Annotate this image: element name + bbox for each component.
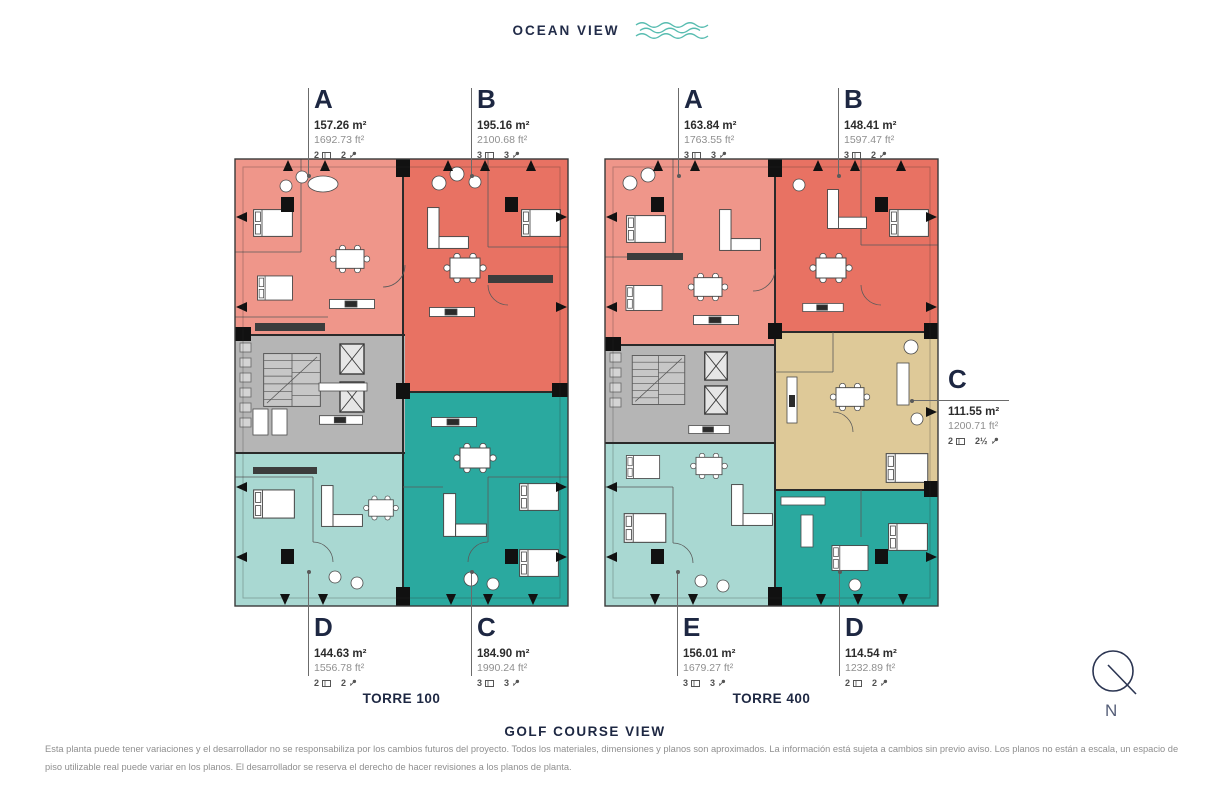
unit-letter: C: [477, 614, 529, 640]
bed-icon: [691, 680, 700, 687]
leader-line: [838, 88, 839, 176]
baths-count: 2: [341, 150, 346, 160]
unit-letter: E: [683, 614, 735, 640]
unit-area-m2: 148.41 m²: [844, 120, 896, 132]
ocean-view-title: OCEAN VIEW: [512, 23, 619, 38]
leader-line: [678, 88, 679, 176]
bed-icon: [322, 152, 331, 159]
unit-label-t100-c: C 184.90 m² 1990.24 ft² 3 3: [477, 614, 529, 688]
beds-count: 3: [683, 678, 688, 688]
bath-icon: [349, 679, 357, 687]
baths-count: 3: [711, 150, 716, 160]
header: OCEAN VIEW: [0, 20, 1226, 40]
unit-letter: D: [845, 614, 897, 640]
unit-area-m2: 163.84 m²: [684, 120, 736, 132]
unit-label-t100-a: A 157.26 m² 1692.73 ft² 2 2: [314, 86, 366, 160]
unit-label-t400-e: E 156.01 m² 1679.27 ft² 3 3: [683, 614, 735, 688]
north-compass-icon: N: [1086, 645, 1158, 723]
unit-area-m2: 184.90 m²: [477, 648, 529, 660]
unit-area-m2: 157.26 m²: [314, 120, 366, 132]
unit-label-t400-d: D 114.54 m² 1232.89 ft² 2 2: [845, 614, 897, 688]
unit-area-ft2: 1597.47 ft²: [844, 134, 896, 146]
unit-bed-bath: 2 2½: [948, 436, 999, 446]
bed-icon: [485, 680, 494, 687]
bed-icon: [853, 680, 862, 687]
beds-count: 2: [948, 436, 953, 446]
bath-icon: [719, 151, 727, 159]
unit-area-m2: 195.16 m²: [477, 120, 529, 132]
torre-100-name: TORRE 100: [233, 691, 570, 706]
golf-course-view-title: GOLF COURSE VIEW: [0, 724, 1170, 739]
bath-icon: [718, 679, 726, 687]
bed-icon: [692, 152, 701, 159]
torre-100-floorplan: [233, 157, 570, 608]
baths-count: 2½: [975, 436, 988, 446]
unit-area-ft2: 2100.68 ft²: [477, 134, 529, 146]
unit-bed-bath: 2 2: [314, 150, 366, 160]
unit-letter: B: [844, 86, 896, 112]
bath-icon: [349, 151, 357, 159]
leader-line: [308, 572, 309, 676]
baths-count: 2: [341, 678, 346, 688]
unit-area-ft2: 1763.55 ft²: [684, 134, 736, 146]
bed-icon: [322, 680, 331, 687]
baths-count: 2: [871, 150, 876, 160]
unit-area-ft2: 1232.89 ft²: [845, 662, 897, 674]
unit-area-ft2: 1990.24 ft²: [477, 662, 529, 674]
unit-area-ft2: 1679.27 ft²: [683, 662, 735, 674]
unit-bed-bath: 3 3: [683, 678, 735, 688]
unit-area-m2: 111.55 m²: [948, 406, 999, 418]
leader-line: [839, 572, 840, 676]
unit-letter: C: [948, 366, 967, 392]
unit-letter: B: [477, 86, 529, 112]
leader-line: [471, 88, 472, 176]
compass-north-label: N: [1105, 701, 1117, 720]
unit-bed-bath: 3 3: [477, 150, 529, 160]
unit-area-ft2: 1200.71 ft²: [948, 420, 999, 432]
baths-count: 2: [872, 678, 877, 688]
unit-label-t100-b: B 195.16 m² 2100.68 ft² 3 3: [477, 86, 529, 160]
unit-label-t400-c-stats: 111.55 m² 1200.71 ft² 2 2½: [948, 406, 999, 446]
beds-count: 3: [844, 150, 849, 160]
unit-bed-bath: 3 2: [844, 150, 896, 160]
baths-count: 3: [710, 678, 715, 688]
unit-area-m2: 156.01 m²: [683, 648, 735, 660]
bath-icon: [879, 151, 887, 159]
beds-count: 2: [314, 150, 319, 160]
baths-count: 3: [504, 678, 509, 688]
beds-count: 2: [314, 678, 319, 688]
unit-bed-bath: 2 2: [314, 678, 366, 688]
beds-count: 3: [684, 150, 689, 160]
leader-line: [677, 572, 678, 676]
torre-400-floorplan: [603, 157, 940, 608]
beds-count: 2: [845, 678, 850, 688]
beds-count: 3: [477, 678, 482, 688]
unit-letter: A: [684, 86, 736, 112]
unit-bed-bath: 3 3: [684, 150, 736, 160]
unit-label-t400-a: A 163.84 m² 1763.55 ft² 3 3: [684, 86, 736, 160]
disclaimer-text: Esta planta puede tener variaciones y el…: [45, 741, 1187, 776]
bath-icon: [512, 679, 520, 687]
bath-icon: [991, 437, 999, 445]
baths-count: 3: [504, 150, 509, 160]
unit-letter: A: [314, 86, 366, 112]
bath-icon: [512, 151, 520, 159]
bed-icon: [956, 438, 965, 445]
unit-label-t100-d: D 144.63 m² 1556.78 ft² 2 2: [314, 614, 366, 688]
leader-line: [471, 572, 472, 676]
torre-400-name: TORRE 400: [603, 691, 940, 706]
unit-area-m2: 114.54 m²: [845, 648, 897, 660]
unit-area-m2: 144.63 m²: [314, 648, 366, 660]
leader-line: [912, 400, 1009, 401]
unit-area-ft2: 1692.73 ft²: [314, 134, 366, 146]
unit-label-t400-c: C: [948, 366, 967, 392]
unit-bed-bath: 3 3: [477, 678, 529, 688]
unit-bed-bath: 2 2: [845, 678, 897, 688]
bed-icon: [852, 152, 861, 159]
bath-icon: [880, 679, 888, 687]
wave-icon: [634, 20, 714, 40]
unit-label-t400-b: B 148.41 m² 1597.47 ft² 3 2: [844, 86, 896, 160]
bed-icon: [485, 152, 494, 159]
beds-count: 3: [477, 150, 482, 160]
unit-area-ft2: 1556.78 ft²: [314, 662, 366, 674]
floorplan-sheet: OCEAN VIEW: [0, 0, 1226, 800]
unit-letter: D: [314, 614, 366, 640]
leader-line: [308, 88, 309, 176]
